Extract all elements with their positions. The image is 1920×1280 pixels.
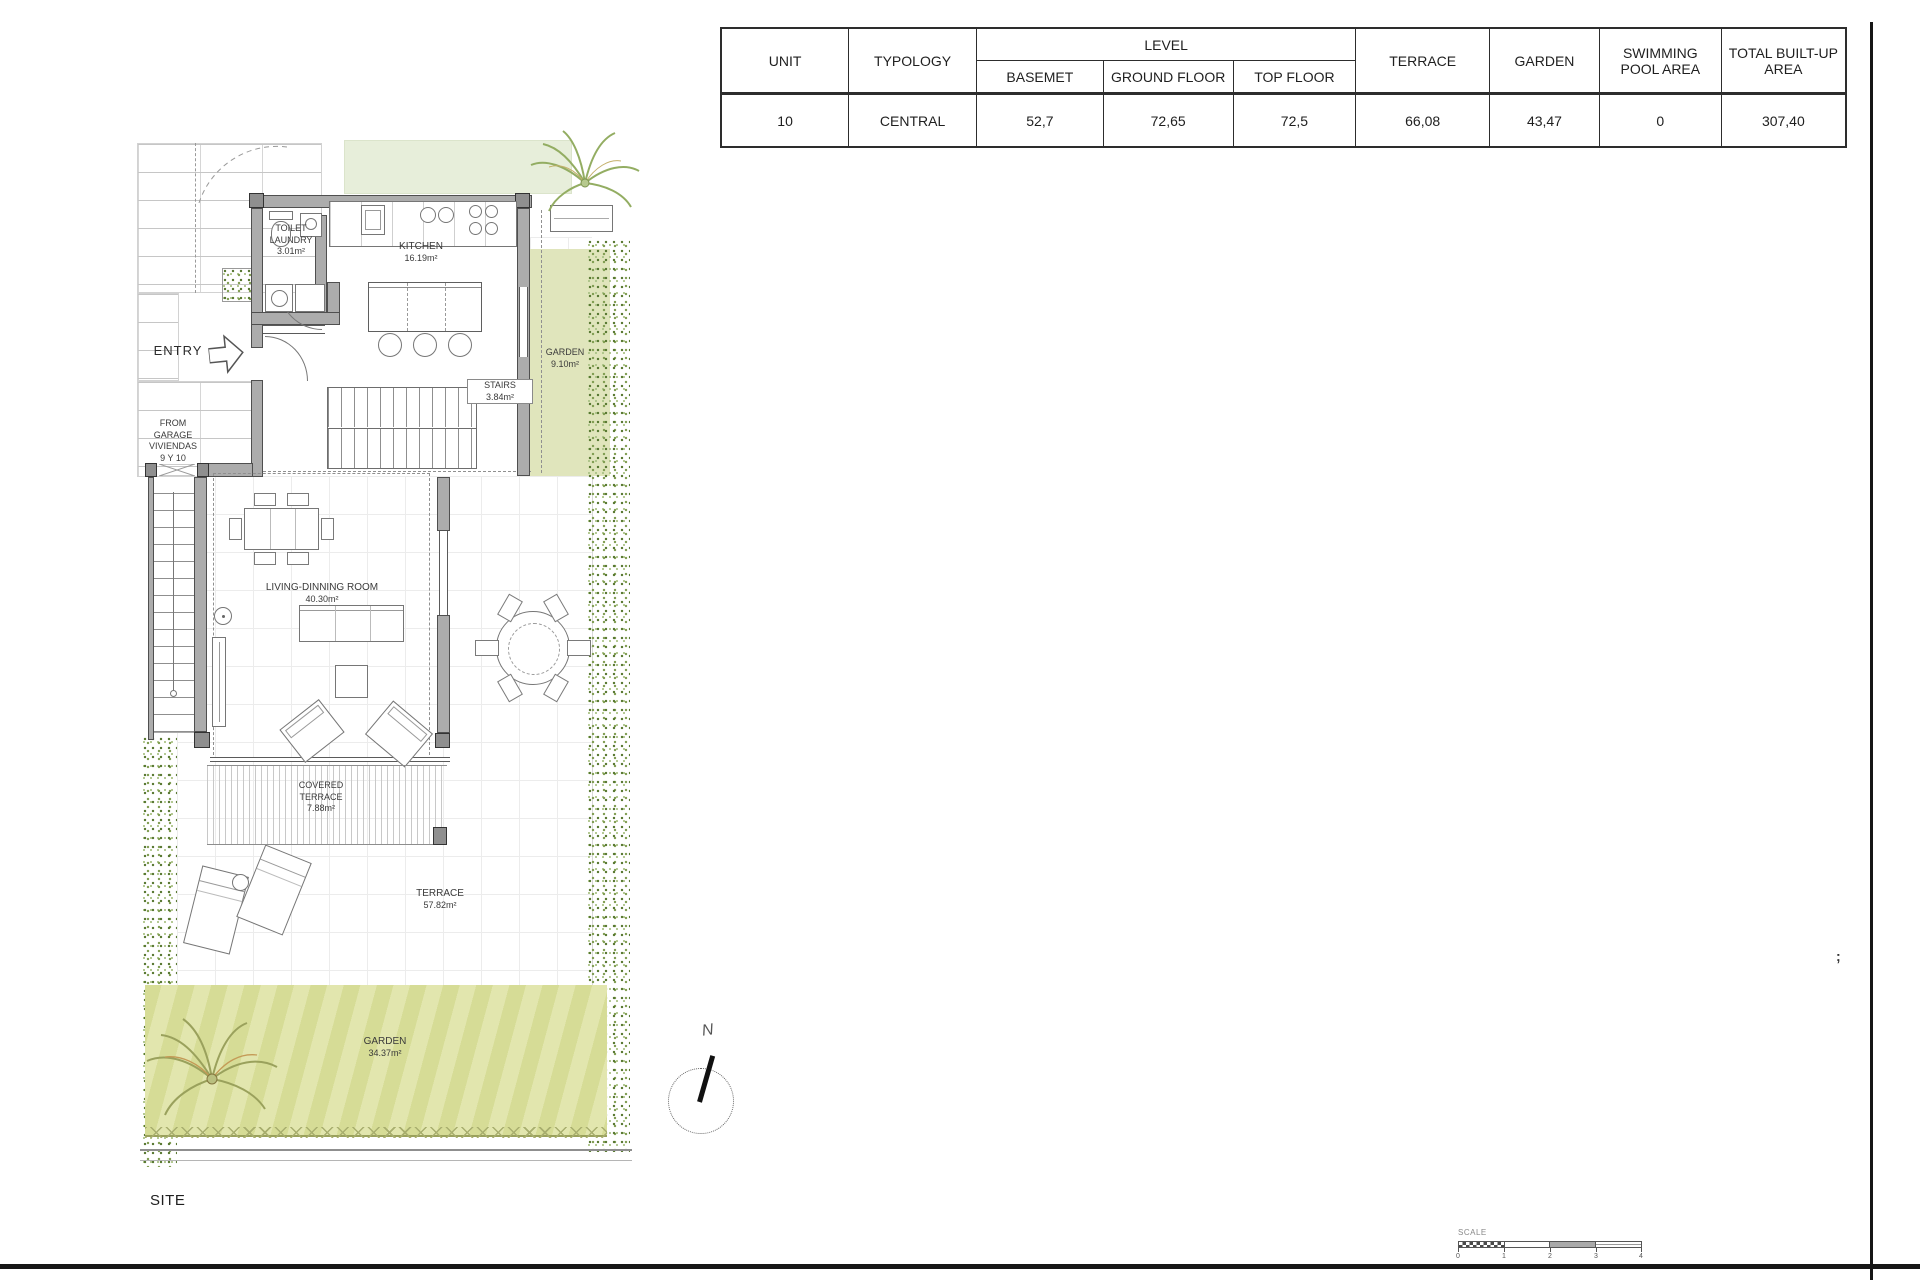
table-divider (295, 509, 296, 549)
side-garden-label: GARDEN9.10m² (533, 347, 597, 370)
sink-bowl (420, 207, 436, 223)
island-divider (407, 283, 408, 331)
lamp-center (222, 615, 225, 618)
terrace-post (433, 827, 447, 845)
tv-cabinet (212, 637, 226, 727)
sofa (299, 605, 404, 642)
living-west-wall (194, 477, 207, 732)
fence-post (145, 463, 157, 477)
scale-seg (1596, 1242, 1641, 1247)
from-garage-label: FROMGARAGE VIVIENDAS9 Y 10 (141, 418, 205, 465)
entry-door-arc (265, 336, 308, 381)
north-letter: N (701, 1021, 715, 1040)
cabinet-inner-line (219, 642, 220, 722)
scale-seg-checker (1459, 1242, 1505, 1247)
value-basement: 52,7 (976, 94, 1103, 148)
scale-number: 3 (1594, 1253, 1598, 1260)
laundry-east-wall (327, 282, 340, 314)
header-basement: BASEMET (976, 61, 1103, 94)
garage-stair-treads (154, 477, 194, 733)
value-top-floor: 72,5 (1233, 94, 1356, 148)
covered-terrace-label: COVEREDTERRACE 7.88m² (267, 780, 375, 815)
internal-stairs (327, 387, 477, 469)
scale-seg (1550, 1242, 1596, 1247)
toilet-laundry-label: TOILETLAUNDRY 3.01m² (255, 223, 327, 258)
gate-cross (159, 464, 195, 476)
value-typology: CENTRAL (849, 94, 977, 148)
sink-bowl (438, 207, 454, 223)
area-summary-table: UNIT TYPOLOGY LEVEL TERRACE GARDEN SWIMM… (720, 27, 1847, 148)
sliding-glass-doors (210, 757, 450, 762)
terrace-label: TERRACE57.82m² (365, 887, 515, 912)
scale-segments (1458, 1241, 1642, 1248)
outdoor-table (496, 611, 570, 685)
planter-box (222, 268, 252, 302)
bar-stool (378, 333, 402, 357)
scale-tick (1596, 1248, 1597, 1252)
header-terrace: TERRACE (1356, 28, 1490, 94)
table-divider (270, 509, 271, 549)
dining-chair (254, 493, 276, 506)
dining-chair (287, 552, 309, 565)
main-garden-label: GARDEN34.37m² (310, 1035, 460, 1060)
washer-drum (271, 290, 288, 307)
value-swimming-pool: 0 (1599, 94, 1721, 148)
handrail-end (170, 690, 177, 697)
wall-post (194, 732, 210, 748)
header-unit: UNIT (721, 28, 849, 94)
palm-tree-icon (525, 123, 645, 241)
neighbour-wall-bricks (137, 293, 179, 381)
scale-number: 0 (1456, 1253, 1460, 1260)
stair-treads (328, 388, 476, 427)
scale-tick (1458, 1248, 1459, 1252)
outdoor-chair (475, 640, 499, 656)
hob-burner (485, 222, 498, 235)
stair-handrail (173, 492, 174, 692)
bar-stool (448, 333, 472, 357)
entry-label: ENTRY (149, 343, 207, 360)
living-room-label: LIVING-DINNING ROOM40.30m² (232, 581, 412, 606)
scale-tick (1641, 1248, 1642, 1252)
stair-treads (328, 429, 476, 468)
sofa-divider (335, 606, 336, 641)
living-east-wall-upper (437, 477, 450, 531)
scale-number: 1 (1502, 1253, 1506, 1260)
outdoor-table-inner (508, 623, 560, 675)
value-total-built-up: 307,40 (1721, 94, 1846, 148)
value-terrace: 66,08 (1356, 94, 1490, 148)
sheet-frame-right (1870, 22, 1873, 1280)
scale-seg (1505, 1242, 1551, 1247)
sofa-divider (370, 606, 371, 641)
coffee-table (335, 665, 368, 698)
scale-label: SCALE (1458, 1228, 1487, 1237)
lounger-fold (257, 868, 302, 887)
value-ground-floor: 72,65 (1103, 94, 1233, 148)
dining-chair (229, 518, 242, 540)
header-total-built-up: TOTAL BUILT-UP AREA (1721, 28, 1846, 94)
living-east-wall-lower (437, 615, 450, 733)
header-ground-floor: GROUND FLOOR (1103, 61, 1233, 94)
floor-plan: TOILETLAUNDRY 3.01m² KITCHEN16.19m² GARD… (137, 137, 642, 1182)
wall-post (435, 733, 450, 748)
island-edge-line (369, 287, 481, 288)
kitchen-label: KITCHEN16.19m² (371, 240, 471, 265)
scale-bar: SCALE 0 1 2 3 4 (1454, 1228, 1654, 1262)
site-label: SITE (150, 1192, 185, 1209)
site-boundary-line (140, 1149, 632, 1151)
side-table (232, 874, 249, 891)
stray-mark: ; (1836, 948, 1841, 964)
overhang-dashed-line (263, 471, 531, 472)
stairs-label: STAIRS3.84m² (467, 379, 533, 404)
washing-machine (265, 284, 293, 312)
dining-chair (254, 552, 276, 565)
sofa-back-line (300, 610, 403, 611)
header-swimming-pool: SWIMMING POOL AREA (1599, 28, 1721, 94)
sheet-frame-bottom (0, 1264, 1920, 1269)
scale-number: 2 (1548, 1253, 1552, 1260)
hob-burner (485, 205, 498, 218)
dining-table (244, 508, 319, 550)
toilet-tank (269, 211, 293, 220)
scale-tick (1550, 1248, 1551, 1252)
north-compass: N (660, 1018, 770, 1148)
palm-tree-icon (137, 1009, 292, 1144)
drawing-sheet: { "table": { "col_unit": "UNIT", "col_ty… (0, 0, 1920, 1280)
bar-stool (413, 333, 437, 357)
lounger-fold (197, 890, 242, 902)
scale-tick (1504, 1248, 1505, 1252)
overhang-dashed-line (541, 210, 542, 473)
fence-post (197, 463, 209, 477)
living-east-window (439, 531, 448, 615)
header-top-floor: TOP FLOOR (1233, 61, 1356, 94)
header-level: LEVEL (976, 28, 1355, 61)
island-divider (445, 283, 446, 331)
laundry-counter (295, 284, 325, 312)
kitchen-window (519, 287, 528, 357)
scale-number: 4 (1639, 1253, 1643, 1260)
dining-chair (287, 493, 309, 506)
neighbour-boundary-dashed (195, 143, 196, 293)
kitchen-island (368, 282, 482, 332)
lounger-headrest (260, 859, 305, 878)
site-boundary-line (140, 1160, 632, 1161)
floor-lamp (214, 607, 232, 625)
oven-inner (365, 210, 381, 230)
wall-post (249, 193, 264, 208)
value-unit: 10 (721, 94, 849, 148)
outdoor-chair (567, 640, 591, 656)
value-garden: 43,47 (1490, 94, 1600, 148)
hob-burner (469, 205, 482, 218)
header-typology: TYPOLOGY (849, 28, 977, 94)
oven (361, 205, 385, 235)
dining-chair (321, 518, 334, 540)
header-garden: GARDEN (1490, 28, 1600, 94)
entry-arrow-icon (207, 331, 247, 379)
hob-burner (469, 222, 482, 235)
